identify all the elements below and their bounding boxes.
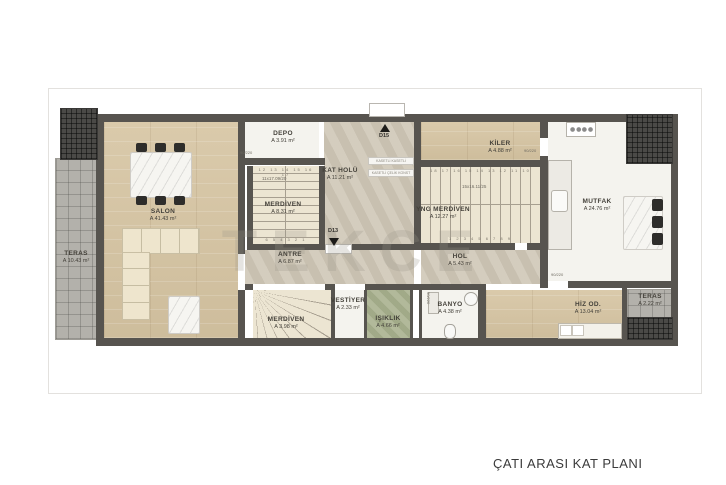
construction-note: KASETLİ KASETLİ bbox=[368, 157, 414, 165]
wall-segment bbox=[96, 338, 678, 346]
label-merdiven-alt: MERDİVEN A 3.98 m² bbox=[268, 316, 305, 332]
label-kiler: KİLER A 4.88 m² bbox=[488, 140, 512, 156]
wall-segment bbox=[245, 158, 325, 165]
room-teras-left bbox=[55, 158, 98, 340]
construction-note: KASETLİ ÇELİK KONST bbox=[368, 169, 414, 177]
wall-segment bbox=[410, 290, 413, 338]
island-chair bbox=[652, 233, 663, 245]
room-antre bbox=[245, 250, 414, 284]
label-kat-holu: KAT HOLÜ A 11.21 m² bbox=[322, 167, 358, 183]
label-hol: HOL A 5.43 m² bbox=[448, 253, 472, 269]
label-banyo: BANYO A 4.38 m² bbox=[438, 301, 463, 317]
label-hiz-od: HİZ OD. A 13.04 m² bbox=[575, 301, 602, 317]
label-merdiven: MERDİVEN A 8.31 m² bbox=[265, 201, 302, 217]
coffee-table bbox=[168, 296, 200, 334]
wall-segment bbox=[414, 160, 547, 167]
label-mutfak: MUTFAK A 24.76 m² bbox=[583, 198, 612, 214]
step-numbers: 6 5 4 3 2 1 bbox=[253, 237, 319, 242]
dining-chair bbox=[155, 143, 166, 152]
step-numbers: 18 17 16 15 14 13 12 11 10 bbox=[421, 168, 540, 173]
island-chair bbox=[652, 199, 663, 211]
wall-segment bbox=[540, 281, 548, 288]
dining-chair bbox=[174, 196, 185, 205]
stove bbox=[566, 122, 596, 137]
wall-segment bbox=[238, 290, 245, 338]
stairs-yng-merdiven bbox=[421, 167, 540, 243]
d13-arrow-icon bbox=[329, 238, 339, 246]
wall-segment bbox=[540, 114, 548, 138]
pillow bbox=[560, 325, 572, 336]
door-size-label: 90/220 bbox=[426, 292, 431, 304]
dining-chair bbox=[136, 196, 147, 205]
roof-hatch-bottom-right bbox=[627, 317, 673, 340]
wall-segment bbox=[245, 284, 253, 290]
toilet bbox=[444, 324, 456, 339]
wall-segment bbox=[365, 284, 480, 290]
label-isiklik: IŞIKLIK A 4.66 m² bbox=[375, 315, 400, 331]
wall-segment bbox=[238, 114, 245, 254]
room-hol bbox=[421, 250, 540, 284]
bathroom-sink bbox=[464, 292, 478, 306]
step-numbers: 1 2 3 4 5 6 7 8 9 bbox=[421, 236, 540, 241]
d15-marker: D15 bbox=[379, 133, 389, 139]
label-teras-right: TERAS A 2.22 m² bbox=[638, 293, 662, 309]
wall-segment bbox=[350, 244, 414, 250]
d15-arrow-icon bbox=[380, 124, 390, 132]
stair-note-fire: 15x16.11/25 bbox=[462, 184, 486, 189]
door-size-label: 90/220 bbox=[240, 150, 252, 155]
door-size-label: 90/220 bbox=[524, 148, 536, 153]
label-antre: ANTRE A 6.87 m² bbox=[278, 251, 302, 267]
dining-chair bbox=[174, 143, 185, 152]
wall-segment bbox=[419, 290, 422, 338]
door-size-label: 90/220 bbox=[551, 272, 563, 277]
sofa-vertical bbox=[122, 252, 150, 320]
room-kiler bbox=[421, 122, 540, 160]
wall-segment bbox=[478, 284, 486, 338]
wall-segment bbox=[247, 244, 325, 250]
label-teras-left: TERAS A 10.43 m² bbox=[63, 250, 90, 266]
wall-segment bbox=[414, 243, 515, 250]
island-chair bbox=[652, 216, 663, 228]
label-depo: DEPO A 3.91 m² bbox=[271, 130, 295, 146]
floor-plan-page: D15 D13 TEKCE TERAS A 10.43 m² SALON A 4… bbox=[0, 0, 726, 485]
step-numbers: 12 13 14 15 16 17 bbox=[253, 167, 319, 177]
label-salon: SALON A 41.43 m² bbox=[150, 208, 177, 224]
entry-stub-d15 bbox=[369, 103, 405, 117]
dining-chair bbox=[136, 143, 147, 152]
room-isiklik bbox=[367, 290, 410, 338]
plan-title: ÇATI ARASI KAT PLANI bbox=[493, 456, 642, 471]
kitchen-sink bbox=[551, 190, 568, 212]
sofa-horizontal bbox=[122, 228, 200, 254]
wall-segment bbox=[414, 122, 421, 250]
roof-hatch-top-right bbox=[626, 114, 673, 164]
dining-chair bbox=[155, 196, 166, 205]
label-vestiyer: VESTİYER A 2.33 m² bbox=[331, 297, 366, 313]
d13-marker: D13 bbox=[328, 228, 338, 234]
roof-hatch-top-left bbox=[60, 108, 98, 160]
pillow bbox=[572, 325, 584, 336]
stair-landing-line bbox=[421, 204, 540, 205]
label-yng-merdiven: YNG MERDİVEN A 12.27 m² bbox=[416, 206, 470, 222]
wall-segment bbox=[540, 156, 548, 288]
dining-table bbox=[130, 152, 192, 198]
